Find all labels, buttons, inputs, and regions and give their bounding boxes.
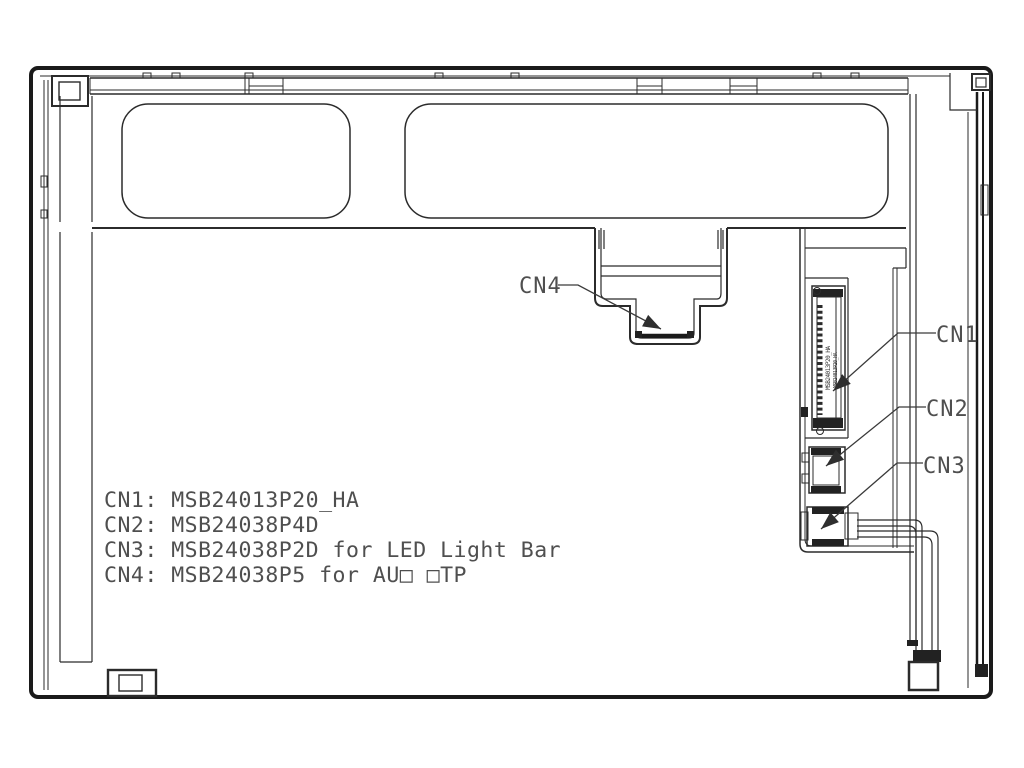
left-rail (41, 76, 156, 696)
cn4-connector (595, 228, 727, 344)
wire-end-connector (909, 662, 938, 690)
cutout-windows (122, 104, 888, 218)
legend-line-cn4: CN4: MSB24038P5 for AU□ □TP (104, 563, 467, 588)
cn4-arrowhead (642, 315, 664, 335)
cn3-leader-line (821, 463, 923, 529)
connector-diagram: MSB24013P20_HA MSB24013P20_HA (0, 0, 1024, 768)
callout-leaders (558, 285, 936, 534)
corner-pad-top-left (52, 76, 88, 106)
cutout-window-right (405, 104, 888, 218)
cn4-label: CN4 (519, 274, 562, 299)
cn2-label: CN2 (926, 397, 969, 422)
connector-diagram-page: MSB24013P20_HA MSB24013P20_HA (0, 0, 1024, 768)
wire-end-cap (913, 650, 941, 662)
cutout-window-left (122, 104, 350, 218)
right-edge-rails (907, 73, 990, 688)
corner-pad-bottom-left (108, 670, 156, 696)
legend-line-cn1: CN1: MSB24013P20_HA (104, 488, 359, 513)
cn3-connector (801, 507, 858, 546)
legend-line-cn2: CN2: MSB24038P4D (104, 513, 319, 538)
connector-legend: CN1: MSB24013P20_HA CN2: MSB24038P4D CN3… (104, 488, 561, 588)
legend-line-cn3: CN3: MSB24038P2D for LED Light Bar (104, 538, 561, 563)
cn1-connector: MSB24013P20_HA MSB24013P20_HA (801, 278, 848, 438)
cn3-label: CN3 (923, 454, 966, 479)
cn1-marking-text: MSB24013P20_HA (825, 346, 832, 390)
cn1-label: CN1 (936, 323, 979, 348)
